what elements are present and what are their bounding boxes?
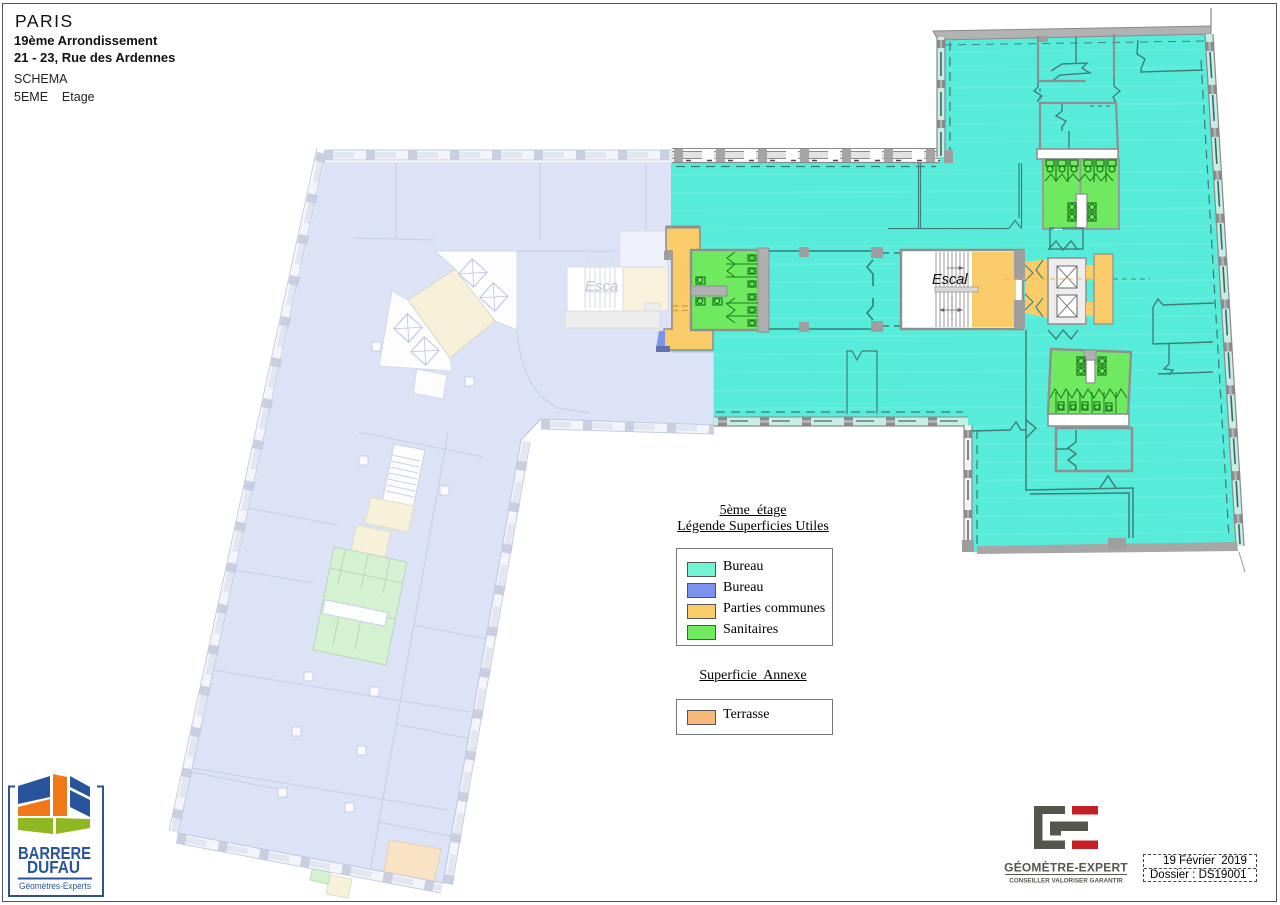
svg-text:DUFAU: DUFAU xyxy=(27,857,80,877)
svg-text:CONSEILLER VALORISER GARANTIR: CONSEILLER VALORISER GARANTIR xyxy=(1009,878,1123,885)
svg-text:Géomètres-Experts: Géomètres-Experts xyxy=(19,881,91,891)
svg-text:GÉOMÈTRE-EXPERT: GÉOMÈTRE-EXPERT xyxy=(1004,860,1128,875)
svg-text:Esca: Esca xyxy=(585,278,618,295)
svg-text:Escal: Escal xyxy=(932,272,968,288)
